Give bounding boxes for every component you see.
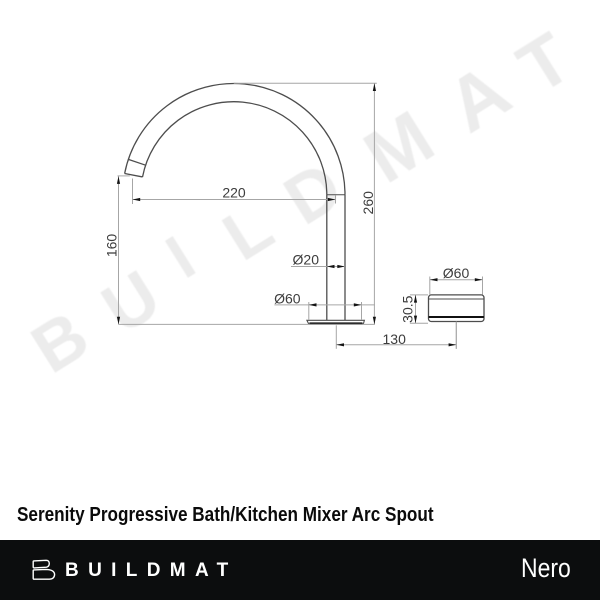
svg-text:220: 220 (222, 185, 246, 201)
svg-text:260: 260 (360, 191, 376, 215)
svg-text:130: 130 (383, 331, 407, 347)
svg-text:Ø60: Ø60 (443, 265, 470, 281)
svg-text:Ø20: Ø20 (293, 252, 320, 268)
svg-text:30.5: 30.5 (400, 295, 416, 322)
svg-text:Ø60: Ø60 (274, 290, 301, 306)
svg-text:160: 160 (104, 234, 120, 258)
